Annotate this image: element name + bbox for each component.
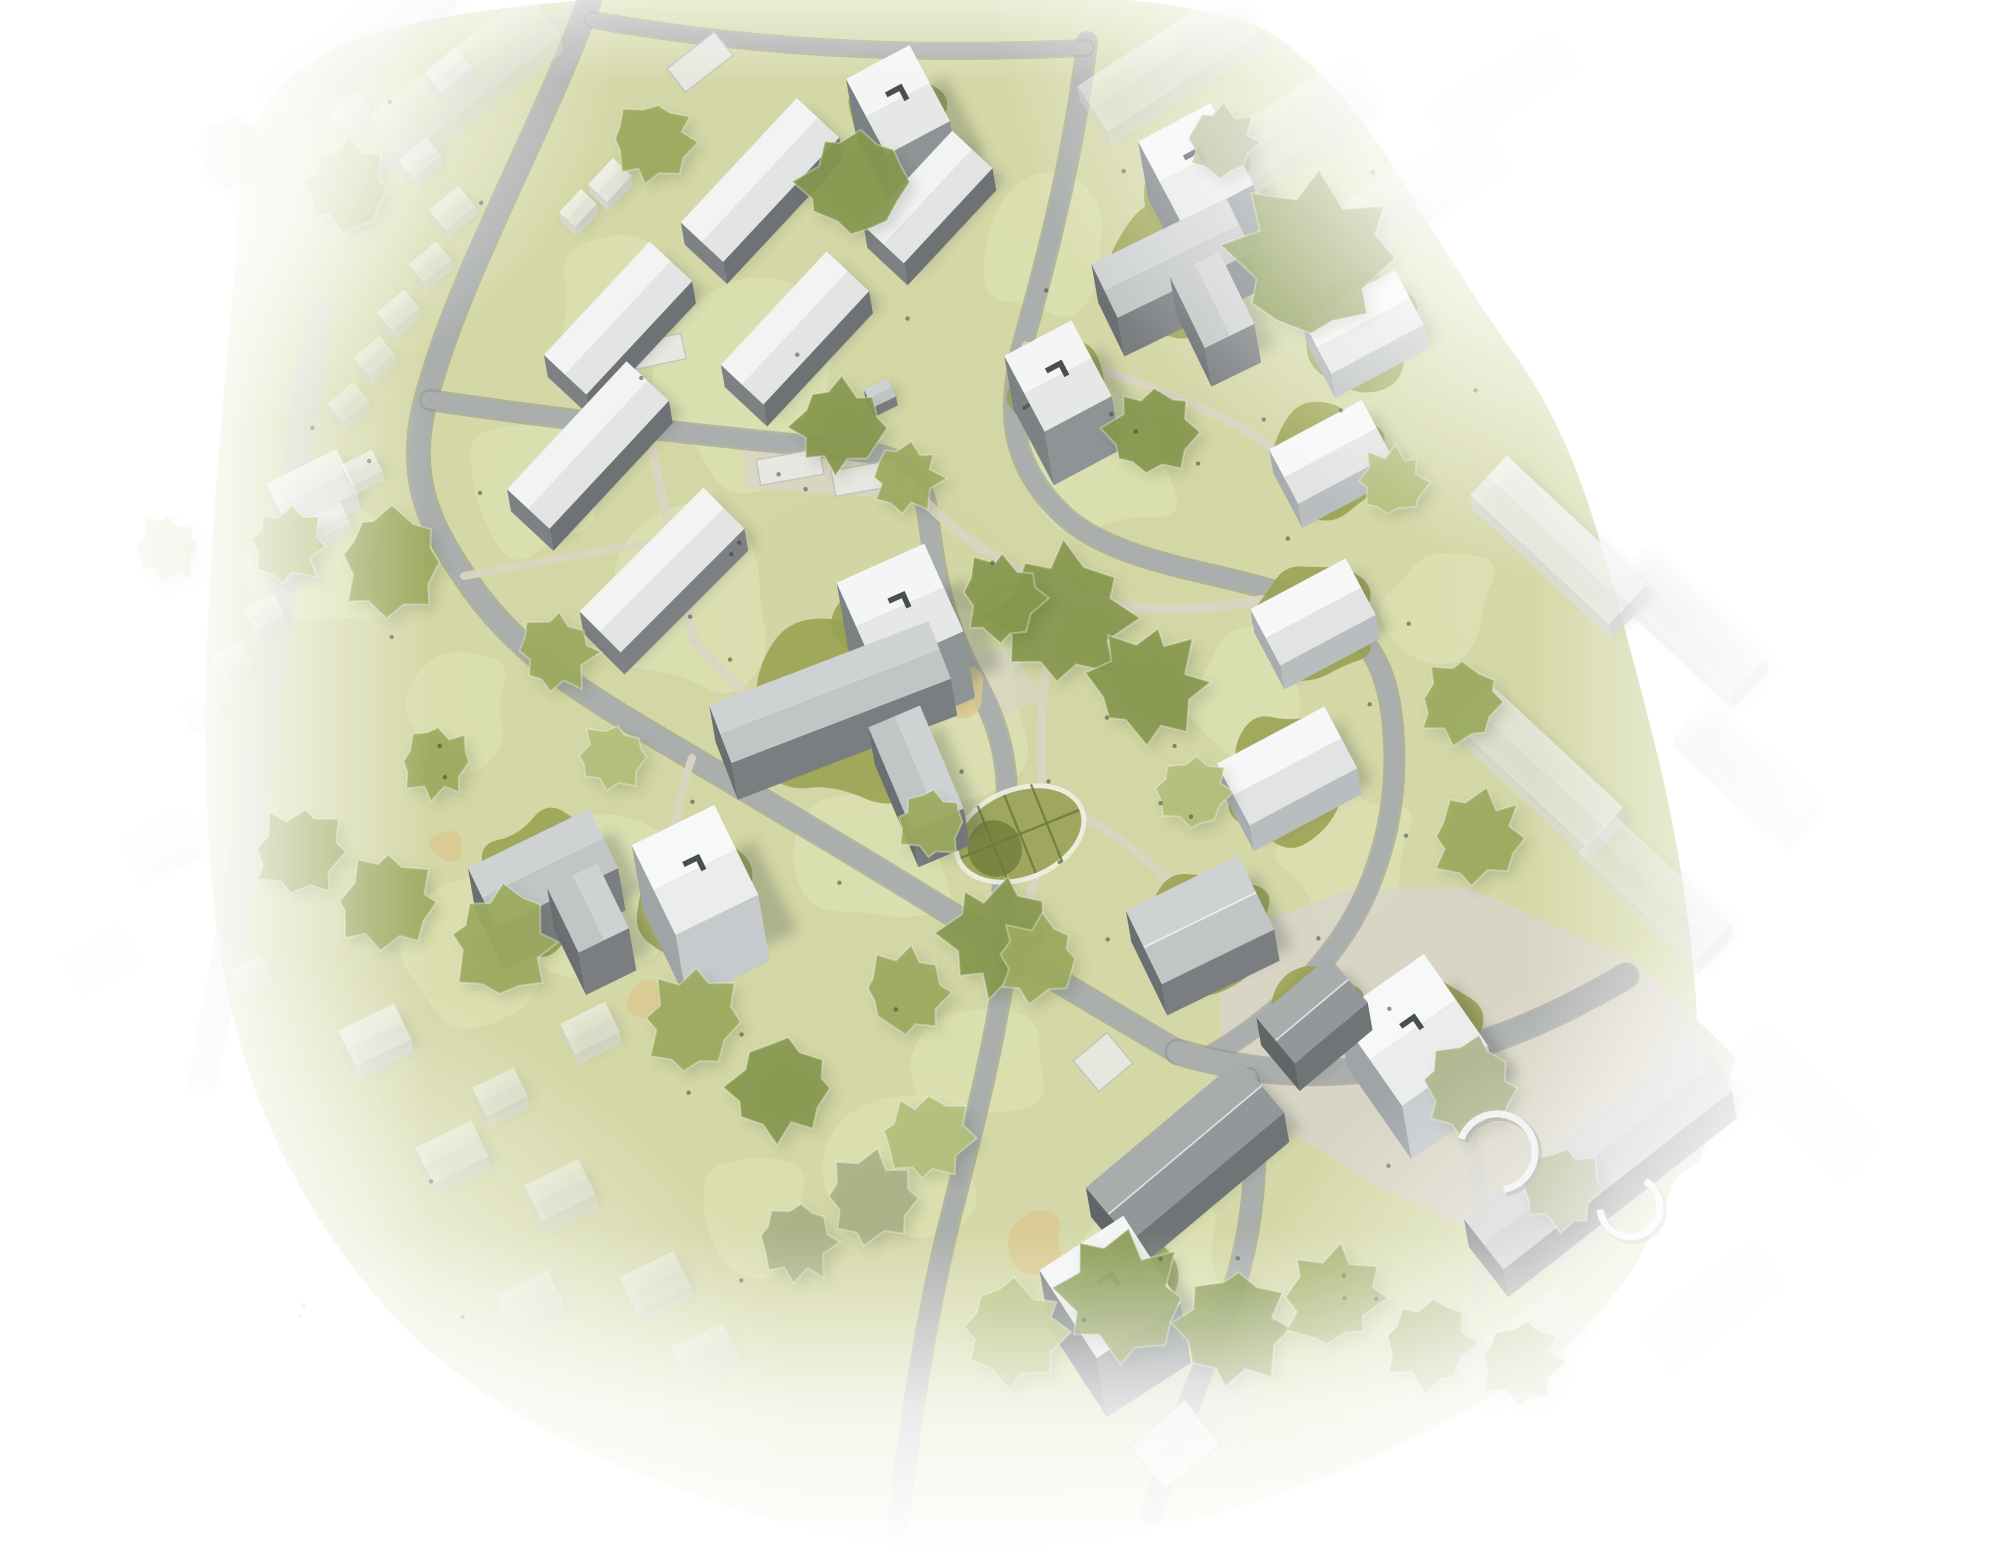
building-shadow [1211, 63, 1384, 202]
context-house [496, 1270, 567, 1341]
context-road [1440, 1068, 1482, 1300]
vignette-corner-bl [0, 910, 830, 1553]
building-wall [1639, 1323, 1673, 1375]
roof-ridge [1276, 979, 1349, 1040]
scatter-dot [1374, 1297, 1378, 1301]
context-house [524, 1159, 598, 1234]
tree-canopy [1000, 913, 1075, 1005]
long-gable-house [1086, 1059, 1289, 1271]
building-wall [240, 979, 274, 1004]
tree-shadow [1365, 451, 1437, 520]
grass-light-patch [1275, 780, 1412, 933]
scatter-dot [388, 100, 392, 104]
building-wall [429, 210, 447, 239]
building-wall [1269, 449, 1302, 528]
tree-canopy [1085, 629, 1210, 746]
vignette-bottom [0, 1230, 2000, 1553]
scatter-dot [1172, 744, 1176, 748]
tree-shadow [1529, 1155, 1609, 1239]
scatter-dot [390, 635, 394, 639]
paved-plaza [948, 648, 1042, 722]
building-roof [217, 653, 253, 679]
building-roof [1628, 547, 1766, 679]
building-roof [1108, 1086, 1284, 1241]
building-wall [192, 711, 224, 735]
scatter-dot [894, 1007, 898, 1011]
tree-shadow [1430, 1041, 1523, 1148]
paved-plaza [1130, 1320, 1256, 1470]
context-road-layer [202, 10, 1482, 1300]
building-wall [550, 401, 673, 551]
building-roof [598, 167, 632, 202]
building-roof [234, 967, 272, 995]
building-wall [496, 1296, 515, 1341]
scatter-dot [1342, 1296, 1346, 1300]
scatter-dot [1158, 1257, 1162, 1261]
building-wall [1609, 585, 1648, 639]
tree-canopy [453, 883, 559, 994]
building-roof [482, 838, 618, 927]
tree-canopy [1171, 1272, 1290, 1387]
building-roof [565, 261, 692, 394]
building-shadow [1086, 0, 1267, 140]
building-wall [544, 355, 590, 417]
building-shadow [479, 1074, 534, 1123]
building-shadow [1232, 720, 1373, 839]
building-roof [1269, 400, 1376, 477]
road-layer [418, 0, 1626, 1540]
building-roof [182, 690, 218, 716]
playground-grid-line [978, 806, 1009, 884]
road [593, 20, 1086, 51]
tree-canopy [257, 810, 346, 893]
building-roof [1470, 475, 1627, 624]
scatter-dot [776, 472, 780, 476]
building-wall [1331, 325, 1428, 398]
building-wall [446, 206, 477, 240]
tree-canopy [1100, 388, 1200, 473]
context-house [671, 1322, 742, 1393]
roof-ridge [1596, 833, 1713, 942]
building-roof [255, 0, 437, 100]
hedge-planting [637, 825, 758, 964]
building-roof [406, 146, 441, 178]
building-shadow [502, 1276, 571, 1336]
tree-canopy [646, 968, 741, 1071]
building-wall [1280, 615, 1380, 690]
scatter-dot [1262, 417, 1266, 421]
road-edge [430, 400, 1008, 942]
grass-field [205, 0, 1697, 1549]
building-wall [1671, 1277, 1783, 1374]
building-roof [679, 1339, 740, 1382]
scatter-dot [690, 800, 694, 804]
tree-shadow [1177, 1278, 1296, 1393]
building-roof [424, 1138, 489, 1183]
tree-canopy [899, 790, 963, 857]
scatter-dot [1196, 461, 1200, 465]
context-slab [1339, 120, 1504, 264]
hedge-planting [849, 77, 948, 170]
building-roof [131, 824, 198, 871]
building-shadow [131, 813, 207, 879]
building-shadow [1587, 821, 1739, 968]
building-wall [904, 168, 997, 285]
building-shadow [594, 163, 638, 207]
road-edge [1014, 42, 1395, 1054]
building-wall [1250, 768, 1362, 851]
white-house [1217, 707, 1362, 852]
building-wall [560, 1024, 577, 1066]
building-shadow [1479, 463, 1655, 632]
roof-ridge [1144, 893, 1256, 948]
tree-canopy [1221, 170, 1396, 334]
building-wall [344, 110, 373, 142]
building-shadow [1316, 283, 1438, 387]
tree-canopy [868, 945, 952, 1035]
scatter-dot [367, 459, 371, 463]
building-roof [472, 1068, 520, 1103]
scatter-dot [478, 491, 482, 495]
building-wall [607, 176, 633, 212]
roof-ridge [679, 1339, 731, 1364]
scatter-dot [1082, 1318, 1086, 1322]
tree-canopy [723, 1037, 830, 1145]
building-wall [671, 1348, 690, 1393]
building-roof [60, 921, 123, 965]
building-wall [1453, 723, 1589, 862]
building-shadow [565, 194, 603, 233]
building-wall [1783, 803, 1819, 851]
housing-slab [681, 98, 843, 284]
building-roof [1233, 737, 1357, 825]
hedge-planting [1252, 566, 1371, 680]
context-house [415, 1120, 491, 1196]
playground [938, 765, 1101, 904]
building-roof [580, 488, 724, 632]
building-wall [763, 291, 873, 426]
grass-light-patch [531, 814, 674, 978]
building-shadow [346, 1010, 419, 1073]
tree-shadow [585, 732, 653, 797]
vignette-right [1530, 0, 2000, 1553]
building-roof [588, 158, 622, 193]
building-wall [392, 308, 421, 340]
tree-shadow [880, 447, 953, 519]
tree-shadow [1393, 1305, 1485, 1400]
tree-canopy [579, 726, 647, 791]
hedge-planting [1358, 972, 1486, 1115]
building-shadow [379, 1, 570, 167]
roof-ridge [1628, 566, 1749, 679]
tree-canopy [829, 1148, 919, 1246]
building-roof [1126, 856, 1256, 948]
building-wall [676, 895, 770, 1002]
building-roof [1217, 707, 1341, 795]
building-shadow [281, 552, 322, 589]
building-roof [1723, 1045, 1859, 1174]
building-shadow [333, 387, 374, 427]
building-wall [486, 1096, 529, 1127]
tree-shadow [652, 974, 747, 1077]
grass-light-patch [845, 608, 1028, 804]
hedge-layer [482, 77, 1486, 1386]
building-wall [637, 1287, 693, 1324]
grass-light-patch [470, 424, 595, 560]
roof-ridge [1489, 475, 1628, 605]
context-row [1673, 701, 1819, 851]
context-house [619, 1251, 692, 1324]
tree-shadow [905, 796, 969, 863]
grass-light-patch [405, 652, 505, 776]
grass-light-patch [652, 277, 832, 493]
building-wall [864, 226, 908, 286]
tree-shadow [621, 111, 704, 190]
tree-shadow [311, 142, 394, 239]
scatter-dot [688, 614, 692, 618]
building-wall [731, 679, 957, 800]
scatter-dot [1109, 412, 1113, 416]
building-roof [524, 1159, 587, 1203]
building-shadow [276, 458, 367, 535]
building-wall [1108, 34, 1262, 147]
building-wall [266, 484, 290, 544]
building-wall [687, 1356, 741, 1392]
building-shadow [734, 263, 882, 416]
long-gray-slab [1464, 1041, 1737, 1298]
building-roof [409, 241, 444, 273]
building-roof [1170, 264, 1230, 348]
building-shadow [334, 96, 377, 138]
building-wall [1295, 1002, 1373, 1091]
footpath [908, 482, 1262, 609]
building-shadow [265, 0, 464, 130]
building-roof [654, 850, 759, 935]
sand-patch [429, 831, 462, 862]
tree-canopy [340, 855, 437, 951]
building-roof [1204, 56, 1362, 172]
building-wall [310, 517, 322, 548]
garage [409, 241, 454, 292]
tree-canopy [981, 539, 1140, 681]
paved-plaza [1216, 888, 1736, 1268]
roof-ridge [479, 1082, 520, 1102]
scatter-dot [837, 880, 841, 884]
building-roof [702, 118, 839, 262]
scatter-dot [1236, 1256, 1240, 1260]
building-roof [1339, 120, 1487, 229]
building-wall [846, 79, 897, 216]
housing-slab [507, 361, 673, 551]
building-roof [187, 701, 223, 727]
white-house [1269, 400, 1395, 528]
tree-shadow [1442, 794, 1531, 892]
building-wall [415, 1148, 435, 1197]
hedge-planting [1229, 716, 1344, 848]
scatter-dot [1386, 1164, 1390, 1168]
roof-ridge [1741, 1045, 1858, 1154]
building-roof [122, 805, 189, 852]
building-shadow [572, 886, 654, 975]
hedge-planting [1107, 194, 1239, 338]
playground-surface [945, 771, 1095, 897]
tree-canopy [1155, 756, 1233, 828]
tree-canopy [792, 130, 910, 235]
tree-shadow [200, 117, 274, 196]
building-shadow [532, 1166, 603, 1228]
building-wall [575, 204, 599, 237]
building-wall [1464, 1219, 1508, 1297]
scatter-dot [739, 1032, 743, 1036]
context-house [338, 1003, 414, 1079]
tree-shadow [1429, 667, 1510, 752]
tower-block [1138, 103, 1264, 280]
roof-ridge [277, 471, 347, 505]
building-wall [122, 833, 143, 885]
roof-vent [889, 595, 909, 608]
building-wall [356, 1039, 414, 1079]
building-wall [1004, 356, 1054, 485]
building-roof [353, 336, 387, 367]
context-house [122, 805, 201, 886]
road [430, 400, 1008, 942]
garage [559, 189, 599, 237]
building-roof [277, 471, 358, 527]
scatter-dot [298, 1313, 302, 1317]
grass-light-patch [793, 792, 950, 917]
housing-slab [864, 131, 997, 286]
site-plan-canvas: Aerial axonometric site plan rendering o… [0, 0, 2000, 1553]
building-wall [547, 888, 586, 995]
footpath [464, 542, 660, 576]
garage [310, 502, 353, 548]
building-wall [1204, 148, 1236, 207]
plaza-layer [742, 440, 1736, 1470]
dark-gable-house [1256, 957, 1372, 1092]
building-wall [1610, 585, 1733, 710]
shadow-layer [68, 0, 1884, 1411]
building-shadow [1729, 1031, 1884, 1180]
building-roof [868, 717, 938, 831]
building-roof [1040, 1216, 1152, 1315]
building-wall [399, 160, 416, 188]
building-wall [837, 583, 888, 737]
building-roof [429, 186, 467, 220]
footpath [1026, 346, 1318, 500]
building-roof [856, 588, 963, 671]
building-wall [1040, 1270, 1107, 1417]
vignette-top [0, 0, 2000, 80]
building-wall [1367, 163, 1503, 263]
building-roof [415, 1120, 480, 1165]
tree-canopy [1387, 1299, 1479, 1394]
building-wall [403, 35, 563, 175]
roof-vent [1098, 1274, 1119, 1286]
building-wall [342, 465, 354, 496]
building-roof [244, 594, 280, 620]
hedge-planting [1048, 1237, 1178, 1387]
road [418, 0, 1178, 1052]
building-roof [1256, 957, 1348, 1041]
building-roof [507, 361, 648, 509]
parking-stall [667, 32, 733, 93]
building-wall [912, 809, 970, 868]
road [1152, 1078, 1255, 1514]
building-roof [1250, 558, 1360, 637]
playground-border [938, 765, 1101, 904]
building-roof [837, 544, 944, 627]
l-building-bar [1091, 198, 1259, 356]
building-roof [361, 345, 395, 376]
building-roof [709, 621, 940, 734]
scatter-dot [739, 1278, 743, 1282]
roof-ridge [1233, 737, 1341, 794]
building-roof [496, 1270, 556, 1313]
building-roof [720, 650, 951, 763]
building-roof [338, 1003, 403, 1048]
footpath [668, 758, 692, 882]
building-wall [424, 260, 453, 292]
hedge-planting [1146, 874, 1270, 995]
building-shadow [1265, 571, 1390, 678]
playground-grid-line [1004, 795, 1035, 873]
context-row [1579, 814, 1734, 974]
scatter-dot [437, 744, 441, 748]
building-wall [320, 523, 352, 547]
scatter-dot [803, 487, 807, 491]
scatter-dot [443, 775, 447, 779]
building-roof [386, 13, 561, 158]
tree-shadow [874, 951, 958, 1041]
context-slab [1723, 1025, 1880, 1185]
building-wall [1118, 252, 1260, 356]
building-roof [281, 558, 317, 584]
footpath [1044, 798, 1200, 920]
tree-shadow [346, 861, 443, 957]
l-building-wing [547, 863, 636, 995]
tree-layer [136, 102, 1609, 1411]
parking-stall [1129, 1400, 1220, 1489]
building-roof [347, 461, 383, 487]
tower-block [1040, 1216, 1191, 1417]
building-roof [315, 513, 351, 539]
building-roof [424, 47, 463, 83]
curved-bench [1461, 1114, 1535, 1189]
context-slab [1453, 1285, 1588, 1416]
scatter-dot [1046, 779, 1050, 783]
building-wall [723, 138, 843, 284]
context-house [266, 449, 360, 543]
tree-shadow [1227, 176, 1402, 340]
building-roof [479, 1082, 527, 1117]
building-wall [559, 212, 577, 236]
tree-shadow [1106, 394, 1206, 479]
tree-shadow [1292, 1249, 1395, 1350]
building-shadow [1462, 691, 1632, 855]
roof-ridge [1284, 427, 1377, 476]
building-wall [369, 354, 397, 385]
building-roof [504, 1287, 565, 1330]
building-roof [1138, 103, 1232, 182]
tree-shadow [890, 1102, 983, 1184]
context-road [356, 10, 575, 192]
building-roof [547, 876, 604, 953]
building-roof [1655, 1257, 1781, 1364]
roof-ridge [1108, 1086, 1261, 1215]
scatter-dot [1473, 388, 1477, 392]
building-roof [1086, 1059, 1262, 1214]
tree-shadow [794, 382, 894, 482]
